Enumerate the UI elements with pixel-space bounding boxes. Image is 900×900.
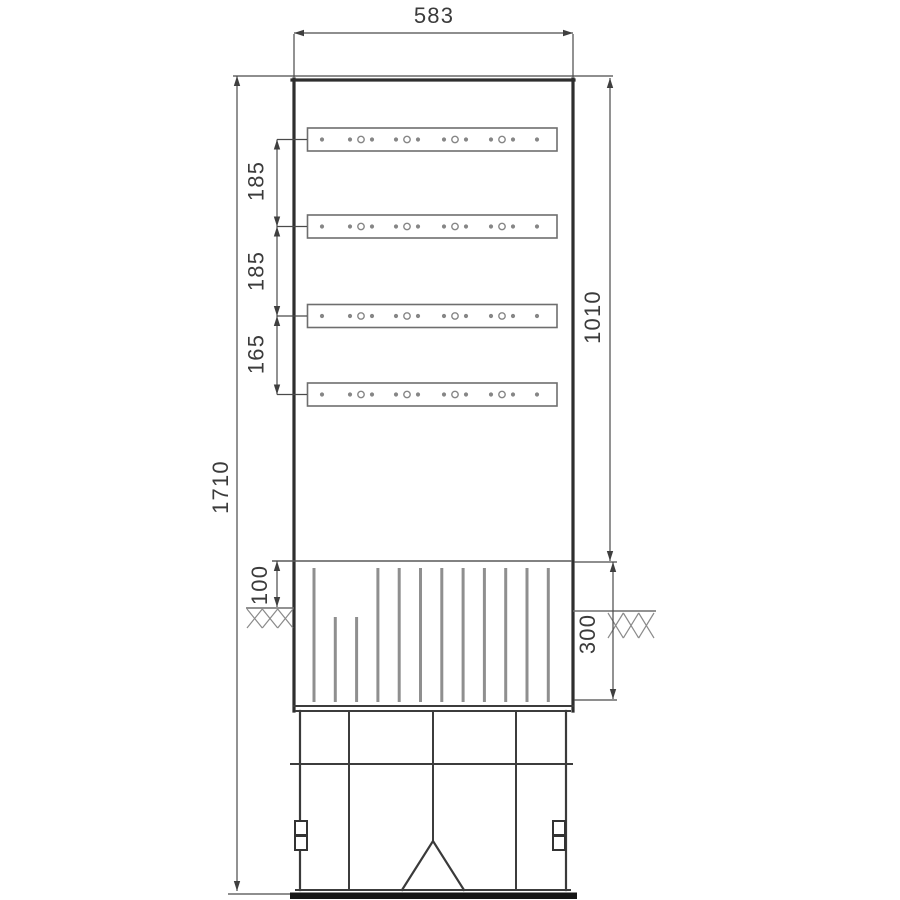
rail-hole — [464, 137, 468, 141]
rail-hole — [464, 314, 468, 318]
rail-hole — [348, 224, 352, 228]
earth-hatch-left — [247, 609, 293, 628]
rail-hole — [348, 392, 352, 396]
dim-arrow — [563, 30, 573, 36]
rail-hole — [489, 224, 493, 228]
dim-arrow — [274, 597, 280, 607]
din-rail-3 — [308, 305, 558, 328]
rail-hole — [348, 137, 352, 141]
drawing-svg: 583 185 185 165 1710 1010 100 300 — [0, 0, 900, 900]
rail-hole — [370, 224, 374, 228]
rail-body — [308, 383, 558, 406]
dim-label-body-height: 1010 — [580, 290, 605, 344]
dim-arrowheads — [234, 30, 616, 891]
dim-arrow — [274, 217, 280, 227]
ground-symbol-left — [246, 608, 294, 628]
rail-hole — [442, 137, 446, 141]
rail-body — [308, 305, 558, 328]
rail-leader-lines — [277, 140, 307, 395]
rail-hole — [394, 137, 398, 141]
dim-arrow — [607, 78, 613, 88]
rail-hole — [370, 314, 374, 318]
dim-arrow — [234, 881, 240, 891]
rail-hole — [394, 314, 398, 318]
slat-panel — [314, 568, 548, 702]
technical-drawing-canvas: 583 185 185 165 1710 1010 100 300 — [0, 0, 900, 900]
din-rails — [308, 128, 558, 406]
rail-hole — [535, 392, 539, 396]
rail-body — [308, 215, 558, 238]
rail-hole — [535, 224, 539, 228]
dim-arrow — [274, 140, 280, 150]
base-clip-right-upper — [553, 821, 565, 835]
dim-label-ground-offset: 100 — [247, 565, 272, 605]
dim-arrow — [274, 306, 280, 316]
base-clip-left-lower — [295, 836, 307, 850]
dim-arrow — [610, 562, 616, 572]
rail-hole — [489, 392, 493, 396]
base-footer-bar — [290, 893, 577, 900]
rail-hole — [442, 224, 446, 228]
rail-hole — [535, 314, 539, 318]
rail-hole — [489, 137, 493, 141]
rail-hole — [511, 137, 515, 141]
rail-hole — [320, 224, 324, 228]
dim-arrow — [274, 385, 280, 395]
rail-hole — [511, 314, 515, 318]
rail-hole — [370, 137, 374, 141]
rail-hole — [320, 137, 324, 141]
dim-label-width: 583 — [414, 3, 454, 28]
rail-hole — [394, 392, 398, 396]
rail-hole — [511, 224, 515, 228]
rail-hole — [511, 392, 515, 396]
rail-hole — [348, 314, 352, 318]
dim-arrow — [274, 316, 280, 326]
rail-hole — [535, 137, 539, 141]
dim-arrow — [294, 30, 304, 36]
dim-arrow — [274, 227, 280, 237]
dim-arrow — [274, 561, 280, 571]
base-assembly — [290, 711, 577, 899]
dim-label-gap3: 165 — [244, 334, 269, 374]
rail-hole — [464, 224, 468, 228]
dim-arrow — [234, 76, 240, 86]
rail-hole — [370, 392, 374, 396]
base-clip-right-lower — [553, 836, 565, 850]
earth-hatch-right — [608, 613, 654, 638]
rail-hole — [464, 392, 468, 396]
dim-label-foundation-depth: 300 — [575, 614, 600, 654]
rail-hole — [416, 137, 420, 141]
rail-hole — [320, 314, 324, 318]
rail-hole — [489, 314, 493, 318]
rail-hole — [416, 392, 420, 396]
base-v-brace — [402, 841, 464, 890]
rail-hole — [320, 392, 324, 396]
dim-arrow — [607, 551, 613, 561]
din-rail-1 — [308, 128, 558, 151]
rail-hole — [416, 314, 420, 318]
dim-label-gap2: 185 — [244, 251, 269, 291]
din-rail-4 — [308, 383, 558, 406]
rail-hole — [394, 224, 398, 228]
dim-label-total-height: 1710 — [208, 460, 233, 514]
rail-hole — [442, 314, 446, 318]
din-rail-2 — [308, 215, 558, 238]
dim-arrow — [610, 689, 616, 699]
rail-hole — [442, 392, 446, 396]
base-clip-left-upper — [295, 821, 307, 835]
rail-hole — [416, 224, 420, 228]
dimension-labels: 583 185 185 165 1710 1010 100 300 — [208, 3, 605, 654]
rail-body — [308, 128, 558, 151]
dim-label-gap1: 185 — [244, 161, 269, 201]
